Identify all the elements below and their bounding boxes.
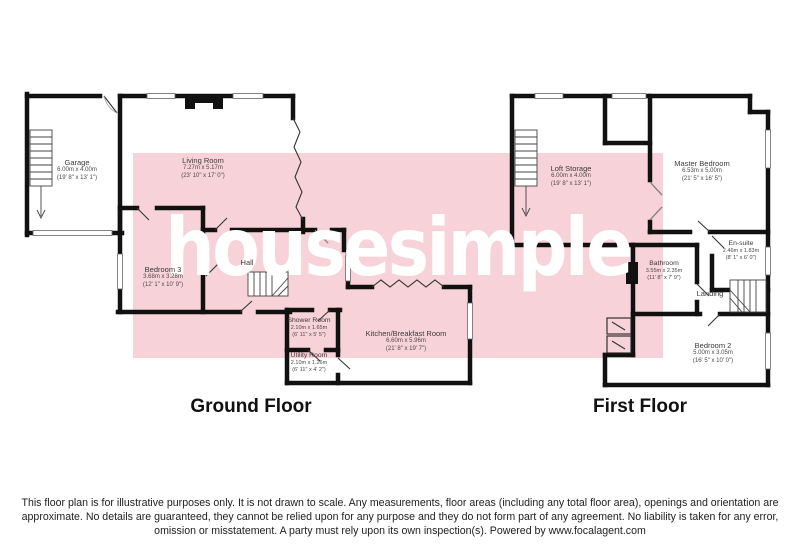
room-label-hall: Hall — [217, 258, 277, 267]
window-icon — [233, 94, 263, 99]
watermark: housesimple — [163, 200, 633, 300]
door-icon — [240, 301, 252, 312]
room-label-loft-storage: Loft Storage 6.00m x 4.00m (19' 8" x 13'… — [511, 164, 631, 188]
room-label-living-room: Living Room 7.27m x 5.17m (23' 10" x 17'… — [143, 156, 263, 180]
window-icon — [766, 130, 771, 168]
window-icon — [147, 94, 175, 99]
room-label-garage: Garage 6.00m x 4.00m (19' 8" x 13' 1") — [17, 158, 137, 182]
room-label-kitchen: Kitchen/Breakfast Room 6.60m x 5.96m (21… — [336, 329, 476, 353]
room-label-en-suite: En-suite 2.46m x 1.83m (8' 1" x 6' 0") — [691, 240, 791, 262]
door-icon — [104, 96, 117, 113]
window-icon — [33, 231, 112, 236]
disclaimer-line-2: approximate. No details are guaranteed, … — [0, 510, 800, 524]
room-label-bathroom: Bathroom 3.55m x 2.35m (11' 8" x 7' 9") — [614, 260, 714, 282]
disclaimer-line-1: This floor plan is for illustrative purp… — [0, 496, 800, 510]
room-label-master-bedroom: Master Bedroom 6.53m x 5.00m (21' 5" x 1… — [642, 159, 762, 183]
window-icon — [612, 94, 646, 99]
window-icon — [535, 94, 563, 99]
room-label-utility-room: Utility Room 2.10m x 1.26m (6' 11" x 4' … — [259, 352, 359, 374]
room-label-bedroom-3: Bedroom 3 3.68m x 3.28m (12' 1" x 10' 9"… — [103, 265, 223, 289]
door-icon — [137, 208, 149, 220]
ground-floor-title: Ground Floor — [141, 396, 361, 418]
room-label-bedroom-2: Bedroom 2 5.00m x 3.05m (16' 5" x 10' 0"… — [653, 341, 773, 365]
room-label-landing: Landing — [680, 289, 740, 298]
chimney-icon — [185, 96, 223, 109]
disclaimer: This floor plan is for illustrative purp… — [0, 496, 800, 538]
floorplan-page: housesimple Garage 6.00m x 4.00m (19' 8"… — [0, 0, 800, 560]
disclaimer-line-3: omission or misstatement. A party must r… — [0, 524, 800, 538]
door-icon — [708, 314, 720, 326]
first-floor-title: First Floor — [530, 396, 750, 418]
door-icon — [698, 221, 710, 232]
